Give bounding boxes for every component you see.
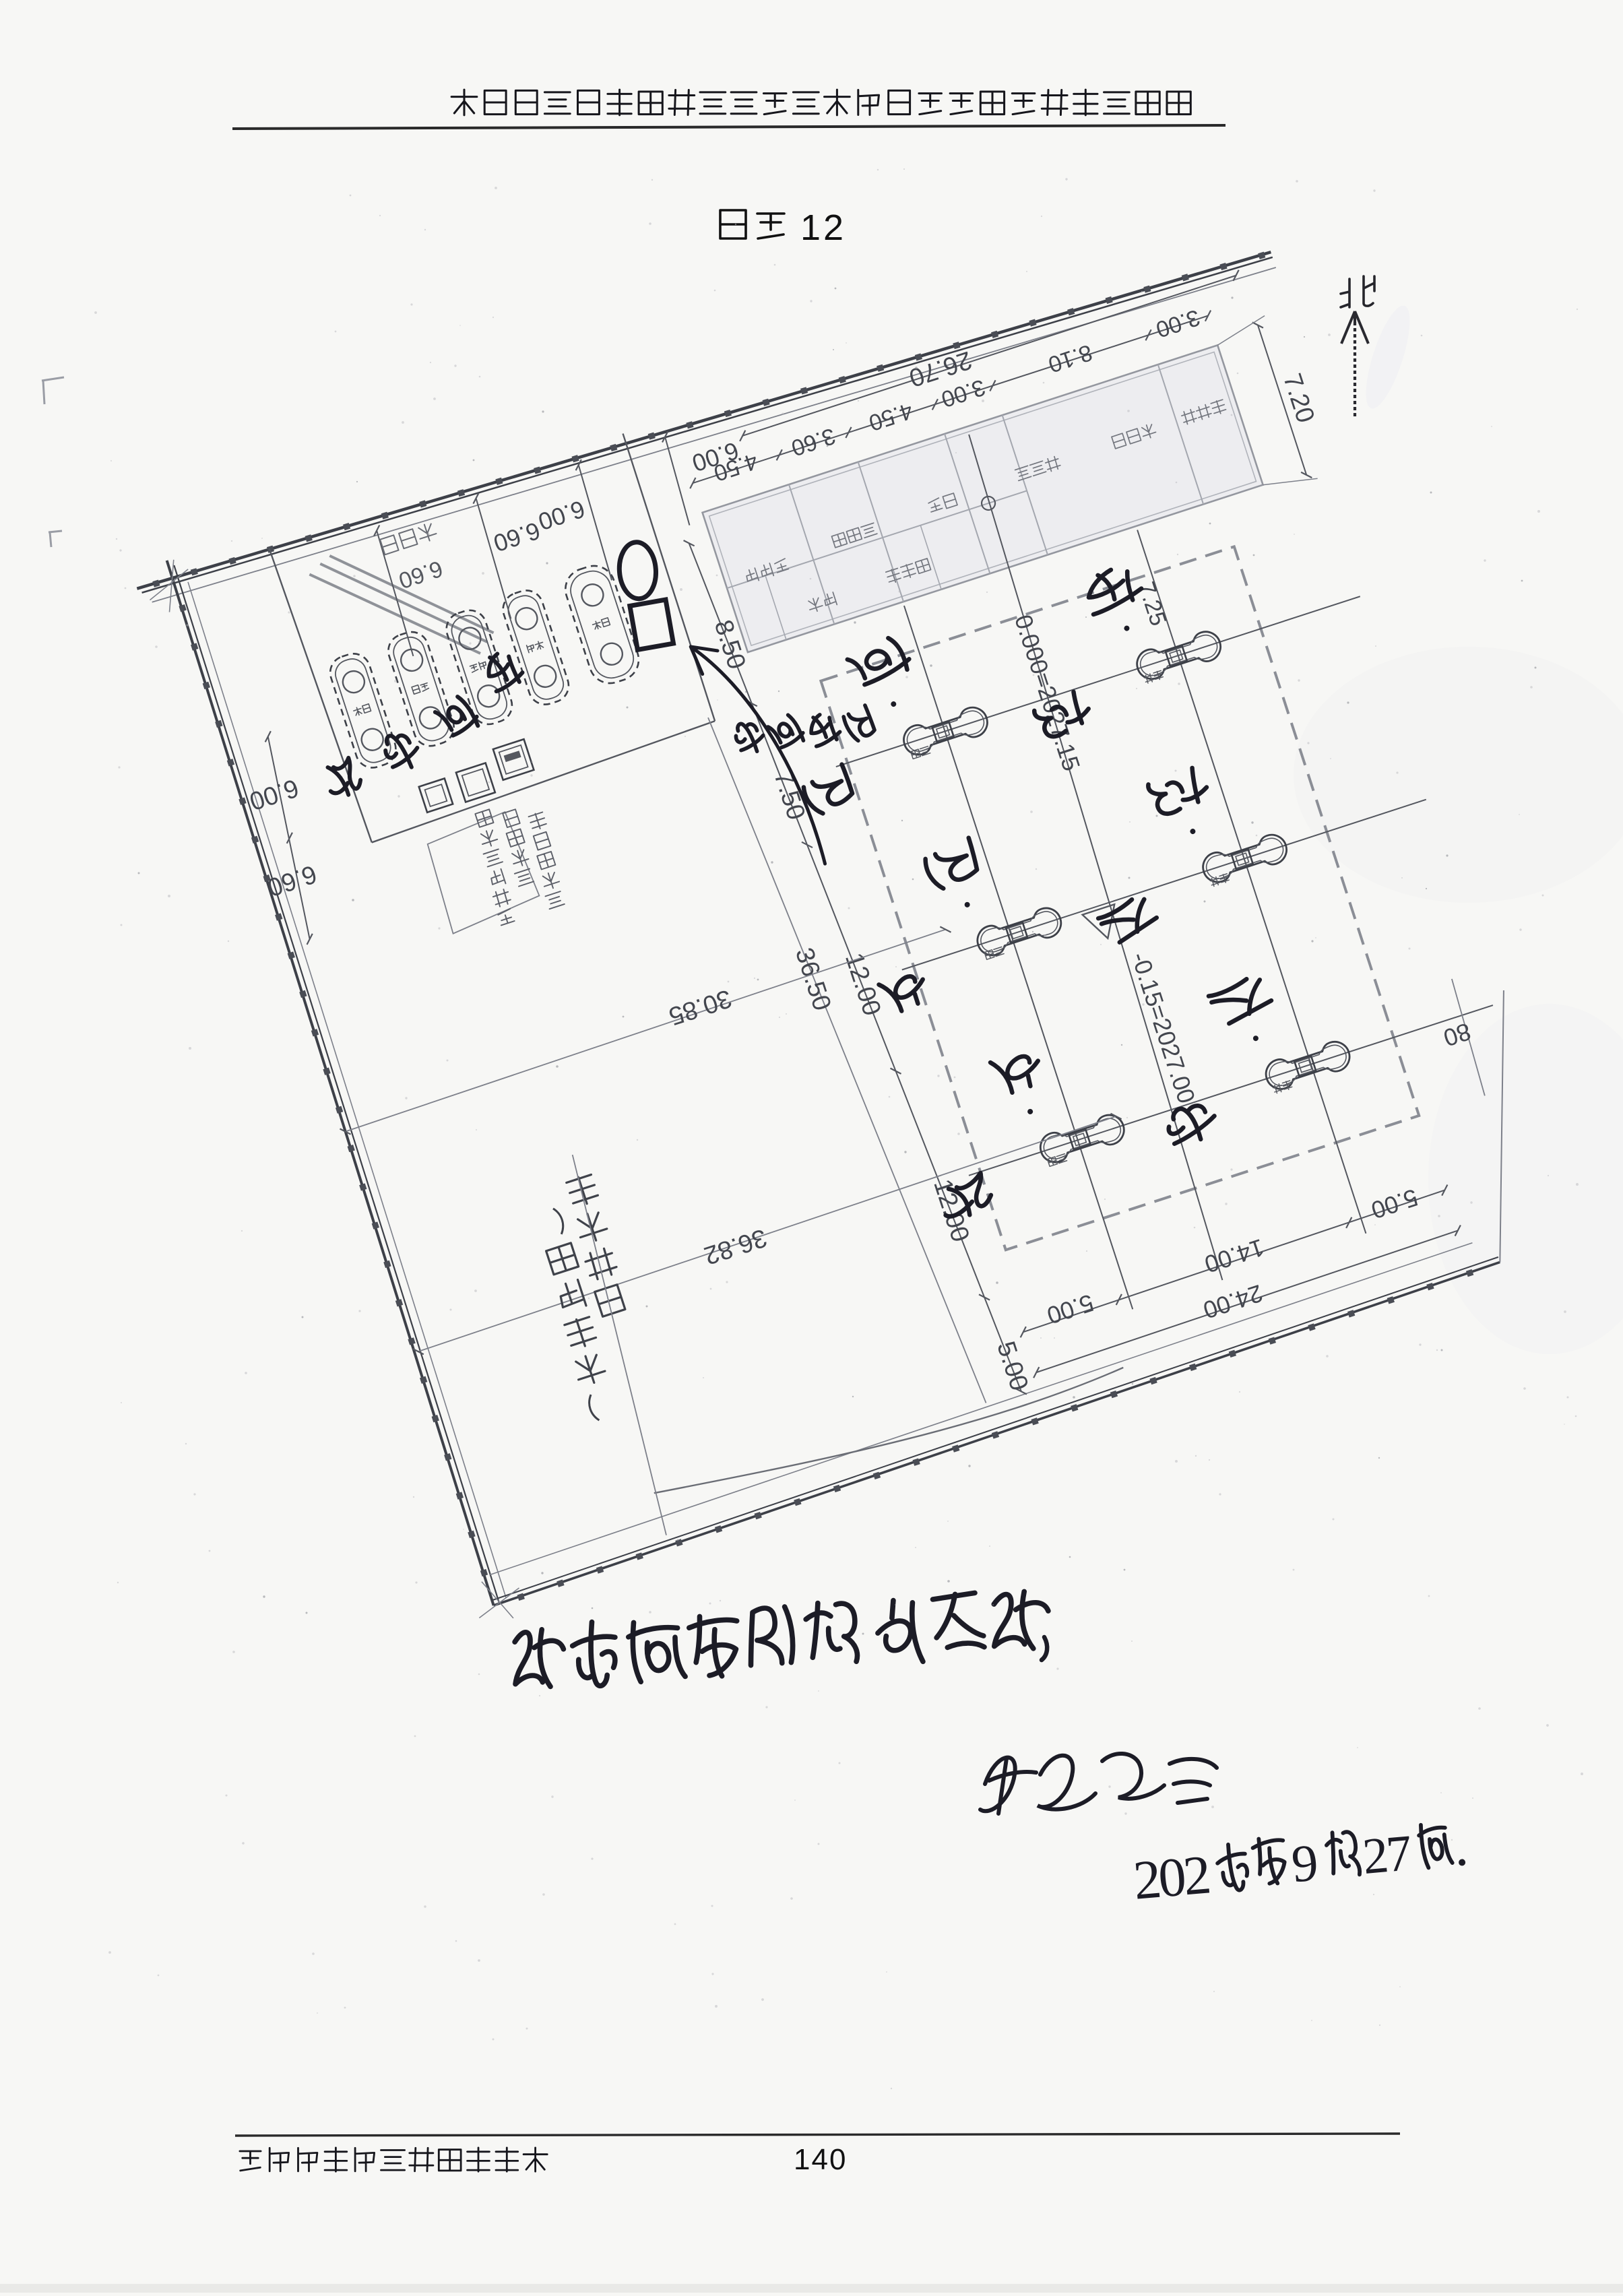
svg-text:27: 27 bbox=[1360, 1824, 1413, 1885]
svg-text:202: 202 bbox=[1131, 1844, 1211, 1911]
svg-text:12: 12 bbox=[800, 208, 846, 248]
svg-text:9: 9 bbox=[1290, 1832, 1320, 1893]
svg-text:140: 140 bbox=[794, 2143, 847, 2176]
